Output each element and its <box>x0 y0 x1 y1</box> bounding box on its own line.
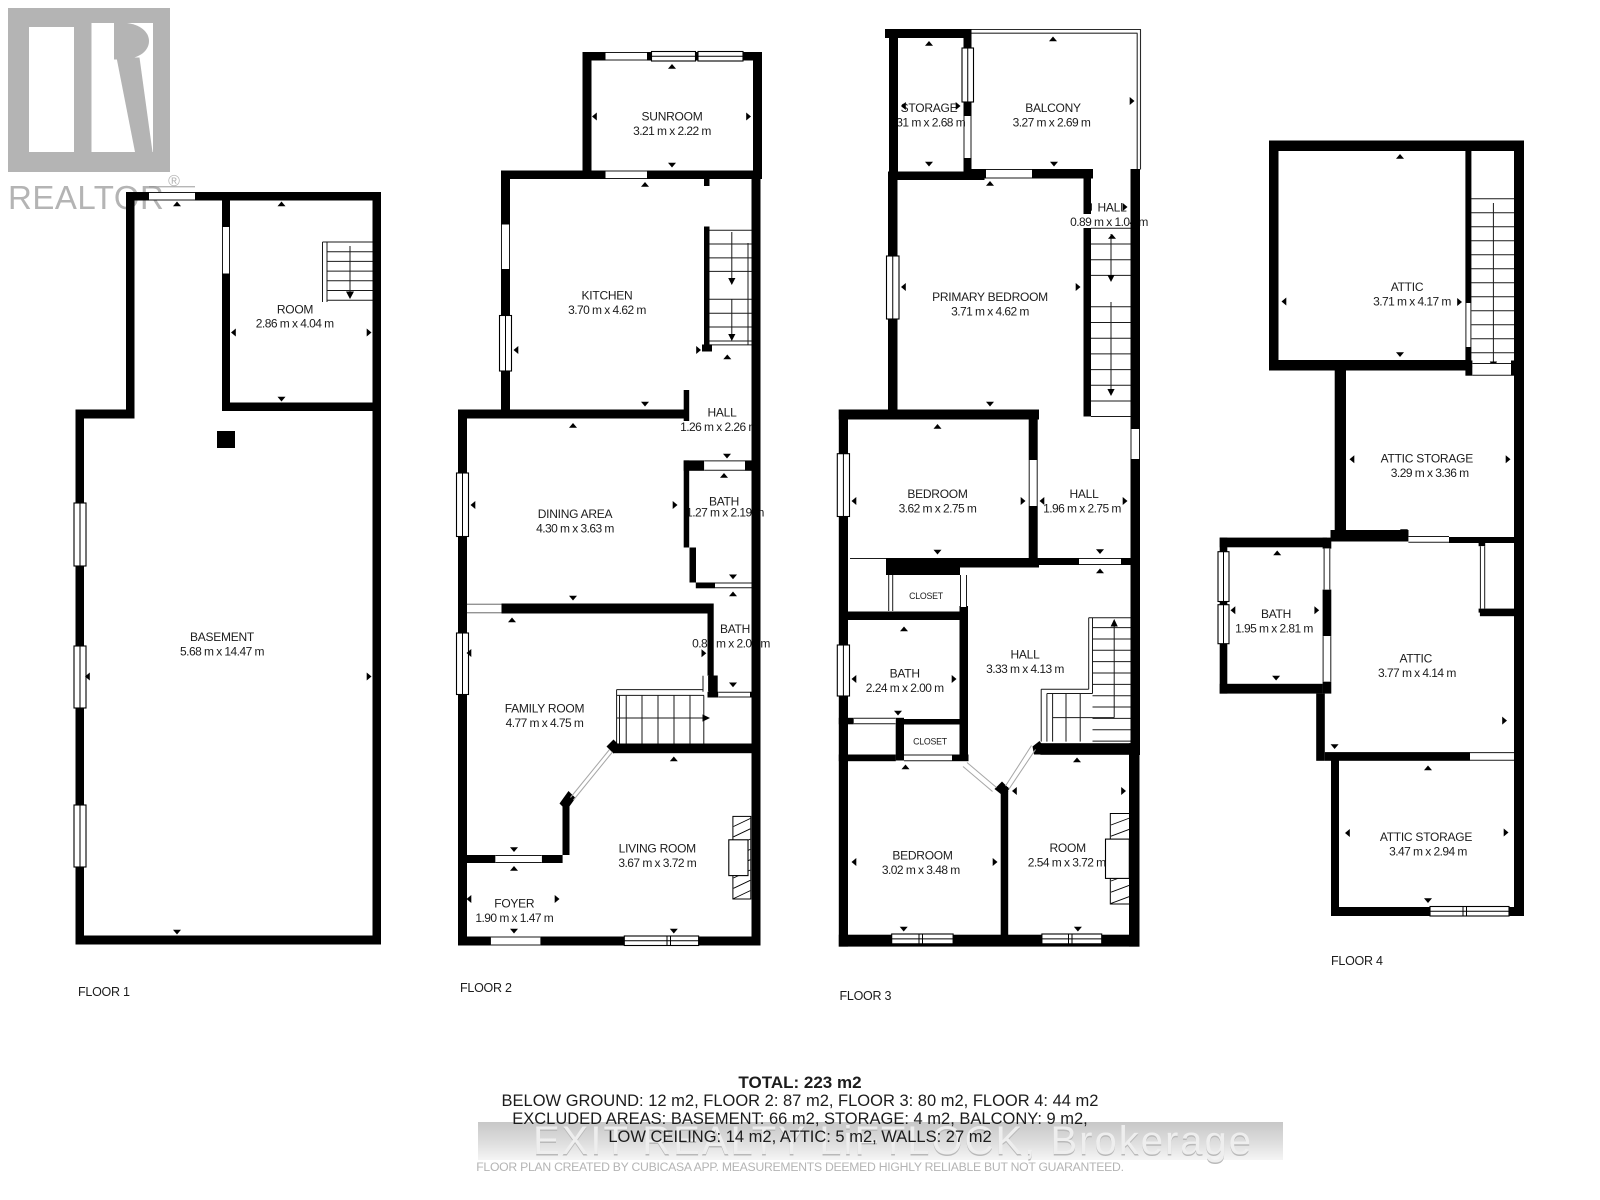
svg-text:FLOOR 1: FLOOR 1 <box>78 985 130 999</box>
svg-text:FLOOR 4: FLOOR 4 <box>1331 954 1383 968</box>
svg-text:3.21 m x 2.22 m: 3.21 m x 2.22 m <box>633 124 711 138</box>
svg-text:FAMILY ROOM: FAMILY ROOM <box>505 702 585 716</box>
svg-text:3.67 m x 3.72 m: 3.67 m x 3.72 m <box>618 856 696 870</box>
svg-text:®: ® <box>168 173 180 190</box>
svg-text:ROOM: ROOM <box>277 303 314 317</box>
svg-text:ATTIC STORAGE: ATTIC STORAGE <box>1380 830 1473 844</box>
svg-text:CLOSET: CLOSET <box>909 591 944 601</box>
svg-text:BEDROOM: BEDROOM <box>892 849 953 863</box>
svg-text:CLOSET: CLOSET <box>913 737 948 747</box>
svg-text:BELOW GROUND: 12 m2, FLOOR 2:: BELOW GROUND: 12 m2, FLOOR 2: 87 m2, FLO… <box>502 1092 1099 1110</box>
svg-text:DINING AREA: DINING AREA <box>538 507 613 521</box>
svg-text:5.68 m x 14.47 m: 5.68 m x 14.47 m <box>180 645 264 659</box>
svg-text:1.26 m x 2.26 m: 1.26 m x 2.26 m <box>680 420 758 434</box>
svg-text:.31 m x 2.68 m: .31 m x 2.68 m <box>894 116 966 130</box>
svg-text:1.95 m x 2.81 m: 1.95 m x 2.81 m <box>1235 622 1313 636</box>
svg-text:4.30 m x 3.63 m: 4.30 m x 3.63 m <box>536 522 614 536</box>
svg-text:3.77 m x 4.14 m: 3.77 m x 4.14 m <box>1378 666 1456 680</box>
svg-text:PRIMARY BEDROOM: PRIMARY BEDROOM <box>932 290 1048 304</box>
svg-text:SUNROOM: SUNROOM <box>642 110 703 124</box>
svg-text:3.62 m x 2.75 m: 3.62 m x 2.75 m <box>899 502 977 516</box>
svg-text:1.96 m x 2.75 m: 1.96 m x 2.75 m <box>1043 502 1121 516</box>
svg-text:3.71 m x 4.62 m: 3.71 m x 4.62 m <box>951 305 1029 319</box>
svg-text:2.54 m x 3.72 m: 2.54 m x 3.72 m <box>1028 856 1106 870</box>
svg-text:KITCHEN: KITCHEN <box>582 289 633 303</box>
svg-text:3.27 m x 2.69 m: 3.27 m x 2.69 m <box>1013 116 1091 130</box>
svg-text:3.70 m x 4.62 m: 3.70 m x 4.62 m <box>568 303 646 317</box>
svg-text:BEDROOM: BEDROOM <box>907 487 968 501</box>
svg-text:FLOOR PLAN CREATED BY CUBICASA: FLOOR PLAN CREATED BY CUBICASA APP. MEAS… <box>476 1160 1124 1174</box>
svg-text:ATTIC: ATTIC <box>1391 280 1424 294</box>
svg-text:FOYER: FOYER <box>494 897 535 911</box>
svg-text:3.02 m x 3.48 m: 3.02 m x 3.48 m <box>882 863 960 877</box>
svg-text:HALL: HALL <box>1010 648 1040 662</box>
svg-text:EXCLUDED AREAS: BASEMENT: 66 m: EXCLUDED AREAS: BASEMENT: 66 m2, STORAGE… <box>512 1110 1088 1128</box>
svg-text:1.90 m x 1.47 m: 1.90 m x 1.47 m <box>475 911 553 925</box>
svg-text:3.29 m x 3.36 m: 3.29 m x 3.36 m <box>1391 466 1469 480</box>
svg-text:FLOOR 3: FLOOR 3 <box>840 989 892 1003</box>
svg-text:ROOM: ROOM <box>1050 841 1087 855</box>
svg-text:2.24 m x 2.00 m: 2.24 m x 2.00 m <box>866 681 944 695</box>
svg-text:4.77 m x 4.75 m: 4.77 m x 4.75 m <box>506 716 584 730</box>
svg-text:BASEMENT: BASEMENT <box>190 630 255 644</box>
svg-text:LOW CEILING: 14 m2, ATTIC: 5 m: LOW CEILING: 14 m2, ATTIC: 5 m2, WALLS: … <box>608 1128 991 1146</box>
svg-text:3.71 m x 4.17 m: 3.71 m x 4.17 m <box>1373 295 1451 309</box>
svg-text:FLOOR 2: FLOOR 2 <box>460 981 512 995</box>
svg-text:BATH: BATH <box>1261 607 1291 621</box>
svg-text:HALL: HALL <box>1097 201 1127 215</box>
svg-text:TOTAL: 223 m2: TOTAL: 223 m2 <box>738 1073 861 1092</box>
svg-text:BALCONY: BALCONY <box>1025 101 1081 115</box>
svg-text:ATTIC: ATTIC <box>1400 652 1433 666</box>
svg-text:BATH: BATH <box>890 667 920 681</box>
svg-text:BATH: BATH <box>720 622 750 636</box>
svg-text:2.86 m x 4.04 m: 2.86 m x 4.04 m <box>256 317 334 331</box>
svg-text:ATTIC STORAGE: ATTIC STORAGE <box>1381 452 1474 466</box>
svg-text:3.47 m x 2.94 m: 3.47 m x 2.94 m <box>1389 845 1467 859</box>
svg-text:STORAGE: STORAGE <box>901 101 958 115</box>
svg-text:HALL: HALL <box>1069 487 1099 501</box>
svg-text:HALL: HALL <box>707 406 737 420</box>
svg-text:3.33 m x 4.13 m: 3.33 m x 4.13 m <box>986 662 1064 676</box>
svg-text:LIVING ROOM: LIVING ROOM <box>619 842 697 856</box>
